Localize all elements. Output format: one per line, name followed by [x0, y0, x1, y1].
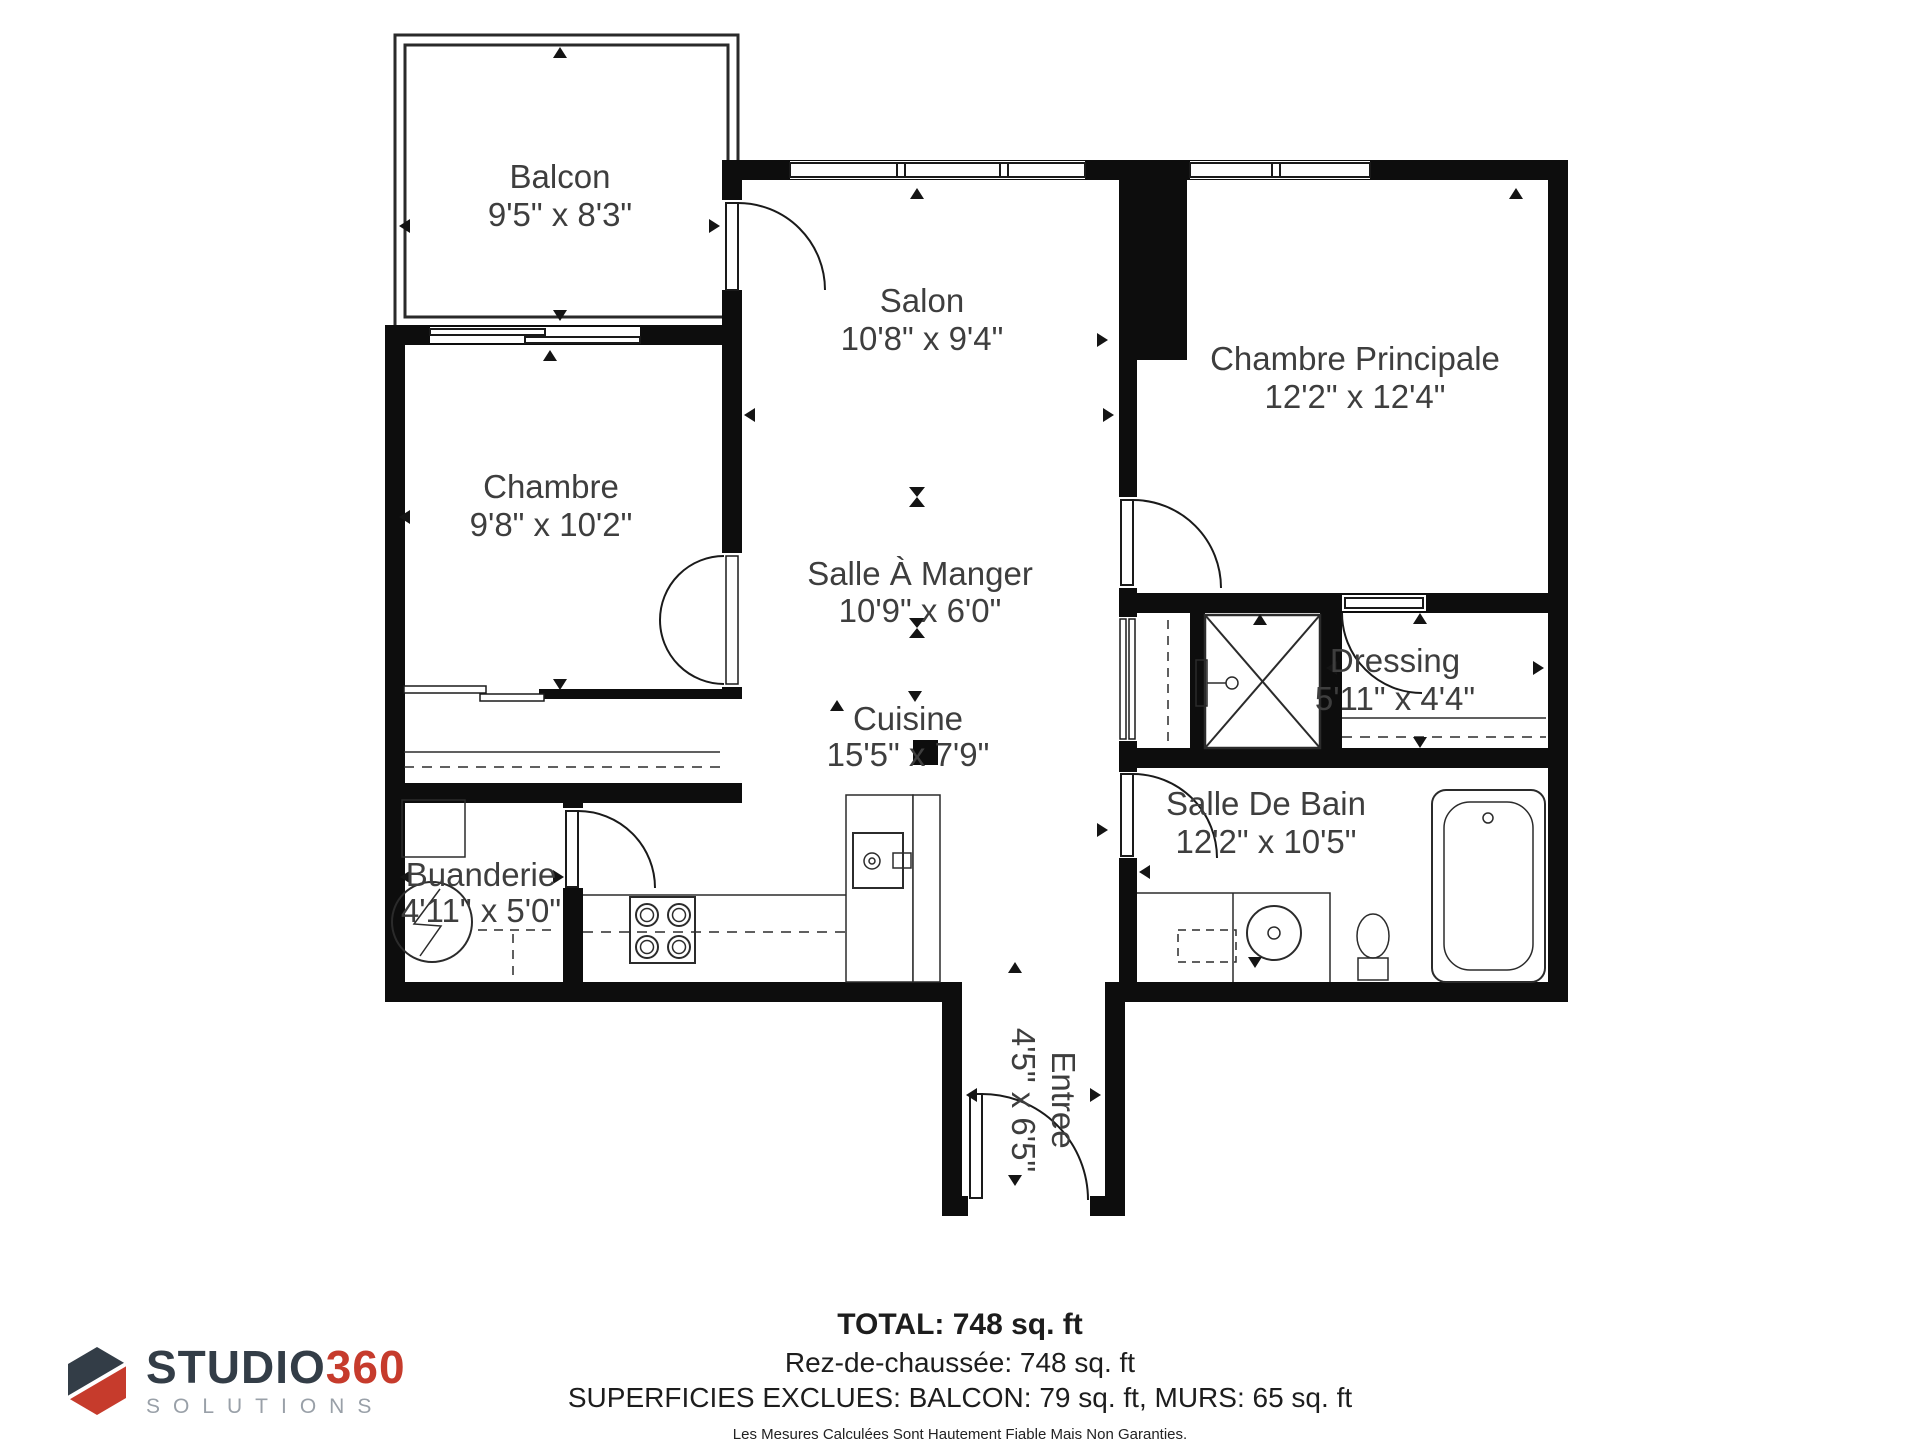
room-dims-entree: 4'5" x 6'5"	[1005, 1028, 1042, 1172]
room-name-cuisine: Cuisine	[853, 700, 963, 737]
logo-brand: STUDIO	[146, 1341, 326, 1393]
room-dims-salle-a-manger: 10'9" x 6'0"	[839, 592, 1002, 629]
logo-subtitle: SOLUTIONS	[146, 1396, 406, 1417]
room-name-dressing: Dressing	[1330, 642, 1460, 679]
disclaimer: Les Mesures Calculées Sont Hautement Fia…	[0, 1426, 1920, 1443]
studio360-logo: STUDIO360 SOLUTIONS	[64, 1344, 406, 1417]
room-name-chambre-principale: Chambre Principale	[1210, 340, 1500, 377]
room-dims-balcon: 9'5" x 8'3"	[488, 196, 632, 233]
room-dims-salle-de-bain: 12'2" x 10'5"	[1176, 823, 1357, 860]
logo-text: STUDIO360 SOLUTIONS	[146, 1344, 406, 1417]
stove-icon	[630, 897, 695, 963]
room-name-buanderie: Buanderie	[406, 856, 556, 893]
floor-plan: Balcon 9'5" x 8'3" Salon 10'8" x 9'4" Ch…	[0, 0, 1920, 1440]
logo-brand-line: STUDIO360	[146, 1344, 406, 1390]
room-name-entree: Entree	[1045, 1051, 1082, 1148]
room-dims-cuisine: 15'5" x 7'9"	[827, 736, 990, 773]
studio360-logo-icon	[64, 1345, 130, 1417]
toilet-icon	[1357, 914, 1389, 980]
logo-brand-number: 360	[326, 1341, 406, 1393]
kitchen-sink-icon	[846, 795, 913, 982]
room-dims-dressing: 5'11" x 4'4"	[1315, 680, 1475, 717]
room-name-balcon: Balcon	[510, 158, 611, 195]
vanity	[1137, 893, 1330, 982]
room-dims-buanderie: 4'11" x 5'0"	[401, 892, 561, 929]
bathtub-icon	[1432, 790, 1545, 982]
room-name-salle-de-bain: Salle De Bain	[1166, 785, 1366, 822]
shower-icon	[1196, 615, 1320, 748]
room-dims-chambre: 9'8" x 10'2"	[470, 506, 633, 543]
room-name-chambre: Chambre	[483, 468, 619, 505]
room-dims-salon: 10'8" x 9'4"	[841, 320, 1004, 357]
room-dims-chambre-principale: 12'2" x 12'4"	[1265, 378, 1446, 415]
total-area: TOTAL: 748 sq. ft	[0, 1308, 1920, 1342]
room-name-salle-a-manger: Salle À Manger	[807, 555, 1033, 592]
room-name-salon: Salon	[880, 282, 964, 319]
